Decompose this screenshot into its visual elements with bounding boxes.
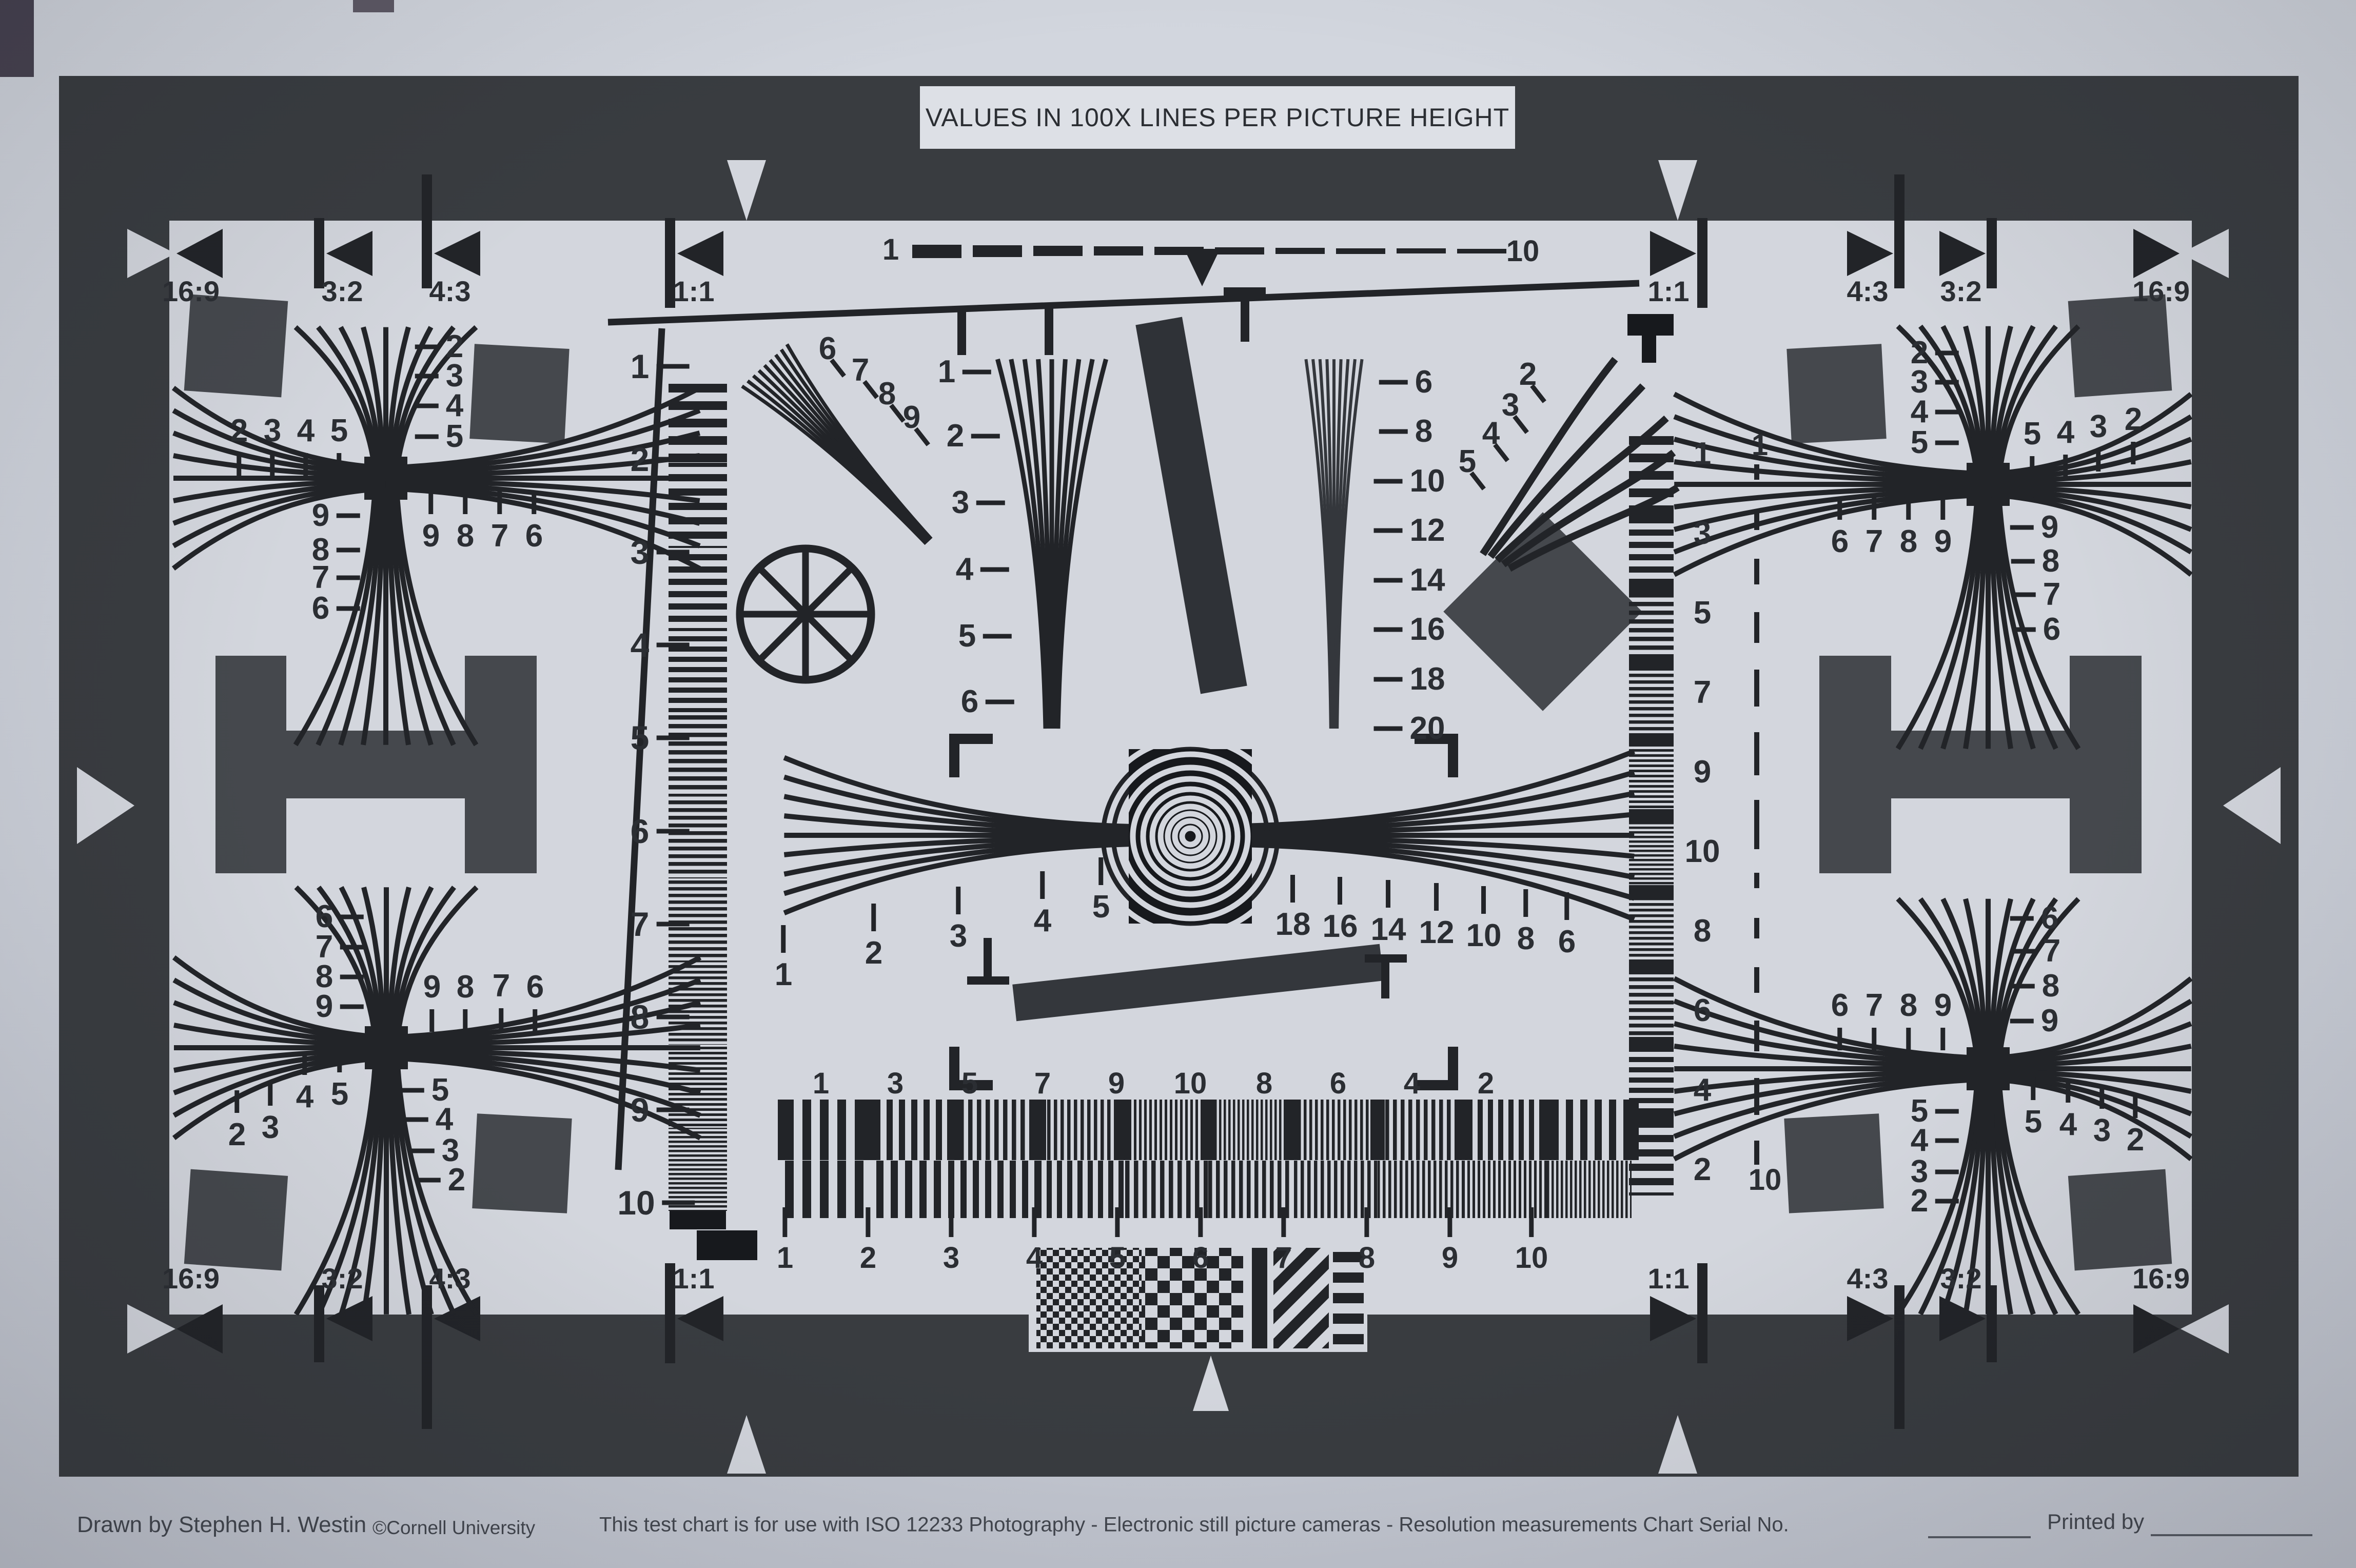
chart-label: 9 — [1934, 990, 1952, 1022]
chart-label: 6 — [2041, 903, 2058, 934]
chart-label: 6 — [2043, 614, 2060, 645]
scale-tick — [949, 1207, 953, 1237]
chart-label: 4 — [631, 628, 650, 662]
chart-label: 4:3 — [429, 1264, 471, 1293]
scale-tick — [533, 1009, 537, 1032]
scale-tick — [2066, 1080, 2070, 1103]
scale-tick — [1935, 1199, 1959, 1204]
scale-tick — [405, 1118, 428, 1122]
chart-label: 3 — [262, 1112, 279, 1144]
scale-tick — [1837, 1028, 1842, 1050]
chart-label: 6 — [1415, 366, 1432, 398]
chart-label: 10 — [617, 1186, 655, 1220]
chart-label: 5 — [2024, 418, 2041, 450]
scale-tick — [270, 453, 274, 476]
chart-label: 3 — [2090, 411, 2107, 443]
chart-label: 8 — [1900, 990, 1917, 1022]
chart-label: 6 — [631, 814, 650, 848]
chart-label: 6 — [316, 901, 333, 933]
chart-label: 1:1 — [673, 277, 715, 306]
chart-label: 5 — [958, 620, 976, 652]
chart-label: 2 — [631, 442, 650, 476]
scale-tick — [237, 453, 241, 476]
chart-label: 1 — [775, 959, 792, 991]
chart-label: 16:9 — [162, 1264, 220, 1293]
scale-tick — [1493, 443, 1509, 462]
scale-tick — [1386, 880, 1391, 908]
chart-label: 3 — [1502, 389, 1519, 421]
chart-label: 8 — [1694, 915, 1711, 947]
scale-tick — [656, 364, 689, 369]
scale-tick — [2133, 1095, 2137, 1118]
scale-tick — [1529, 1207, 1534, 1237]
chart-label: 7 — [491, 520, 508, 552]
chart-label: 10 — [1410, 465, 1445, 497]
chart-label: 9 — [422, 520, 440, 552]
serial-number-underline — [1928, 1536, 2031, 1538]
scale-tick — [463, 492, 467, 514]
chart-label: 2 — [2125, 404, 2142, 436]
chart-label: 2 — [1478, 1069, 1494, 1099]
scale-tick — [2010, 916, 2034, 921]
scale-tick — [1364, 1207, 1369, 1237]
chart-label: 16 — [1410, 614, 1445, 645]
chart-label: 3 — [1694, 518, 1711, 550]
chart-label: 9 — [316, 991, 333, 1023]
chart-label: 16:9 — [2132, 1264, 2190, 1293]
scale-tick — [1482, 886, 1486, 914]
chart-label: 16:9 — [2132, 277, 2190, 306]
chart-label: 14 — [1410, 564, 1445, 596]
chart-label: 9 — [2041, 512, 2058, 543]
scale-tick — [2011, 984, 2035, 989]
scale-tick — [303, 453, 308, 476]
scale-tick — [1447, 1207, 1452, 1237]
scale-tick — [656, 550, 689, 555]
chart-label: 1:1 — [1648, 277, 1690, 306]
chart-label: 6 — [1831, 990, 1849, 1022]
chart-label: 16:9 — [162, 277, 220, 306]
scale-tick — [1935, 380, 1959, 385]
scale-tick — [1032, 1207, 1036, 1237]
chart-label: 8 — [316, 961, 333, 993]
scale-tick — [1374, 677, 1403, 682]
chart-label: 12 — [1419, 917, 1455, 949]
scale-tick — [340, 975, 364, 979]
chart-label: 1 — [1694, 438, 1711, 470]
chart-label: 2 — [947, 420, 964, 452]
scale-tick — [1564, 892, 1569, 920]
chart-label: 5 — [1694, 597, 1711, 629]
scale-tick — [656, 643, 689, 648]
scale-tick — [2012, 949, 2036, 954]
chart-label: 8 — [1900, 526, 1917, 558]
scale-tick — [2012, 593, 2036, 597]
chart-label: 10 — [1685, 836, 1720, 868]
chart-label: 2 — [230, 415, 248, 447]
scale-tick — [1374, 727, 1403, 731]
chart-label: 4 — [1026, 1243, 1043, 1273]
chart-label: 4 — [1911, 1125, 1928, 1157]
chart-label: 2 — [865, 937, 882, 969]
scale-tick — [337, 548, 360, 553]
chart-label: 8 — [457, 971, 474, 1003]
scale-tick — [411, 1149, 435, 1153]
chart-label: 10 — [1466, 920, 1502, 952]
chart-label: 6 — [961, 686, 978, 718]
scale-tick — [866, 1207, 870, 1237]
scale-tick — [656, 736, 689, 740]
chart-label: 7 — [2043, 579, 2060, 611]
scale-tick — [417, 1178, 441, 1183]
chart-label: 4 — [2057, 417, 2074, 448]
scale-tick — [1906, 1028, 1911, 1050]
chart-label: 9 — [2041, 1005, 2058, 1037]
chart-label: 16 — [1323, 911, 1358, 943]
scale-tick — [2010, 1019, 2034, 1024]
chart-label: 10 — [1506, 237, 1540, 266]
scale-tick — [862, 380, 879, 399]
chart-label: 3 — [446, 360, 463, 392]
chart-label: 1 — [813, 1069, 829, 1099]
chart-label: 3 — [2093, 1115, 2111, 1147]
chart-label: 4 — [436, 1104, 453, 1135]
scale-tick — [340, 915, 364, 919]
scale-tick — [428, 492, 433, 514]
scale-tick — [497, 492, 502, 514]
chart-label: 14 — [1371, 914, 1406, 946]
scale-tick — [986, 700, 1014, 704]
chart-label: 8 — [457, 520, 474, 552]
chart-label: 9 — [1108, 1069, 1125, 1099]
chart-label: 18 — [1410, 663, 1445, 695]
scale-tick — [234, 1090, 239, 1113]
chart-label: 1:1 — [1648, 1264, 1690, 1293]
scale-tick — [656, 1108, 689, 1112]
scale-tick — [914, 427, 930, 446]
chart-label: 7 — [852, 355, 869, 386]
scale-tick — [2010, 525, 2034, 530]
scale-tick — [871, 904, 876, 931]
chart-label: 4 — [1694, 1074, 1711, 1106]
chart-label: 2 — [1911, 1185, 1928, 1217]
scale-tick — [656, 457, 689, 462]
chart-label: 8 — [1517, 923, 1535, 955]
chart-label: 9 — [903, 402, 920, 434]
scale-tick — [1935, 1109, 1959, 1114]
chart-label: 9 — [1934, 526, 1952, 558]
chart-label: 2 — [228, 1119, 246, 1151]
chart-label: 5 — [446, 421, 463, 453]
scale-tick — [1374, 578, 1403, 583]
scale-tick — [1338, 877, 1343, 905]
footer-copyright: ©Cornell University — [372, 1517, 535, 1539]
scale-tick — [1940, 1028, 1945, 1050]
footer-printed-by: Printed by — [2047, 1510, 2144, 1534]
chart-label: 4 — [1034, 905, 1051, 937]
chart-label: 6 — [1694, 995, 1711, 1027]
chart-label: 6 — [1831, 526, 1849, 558]
chart-label: 10 — [1174, 1069, 1207, 1099]
chart-label: 18 — [1275, 909, 1311, 940]
chart-labels: 16:93:24:31:11:14:33:216:916:93:24:31:11… — [0, 0, 2356, 1568]
scale-tick — [340, 945, 364, 950]
chart-label: 5 — [331, 1079, 348, 1110]
scale-tick — [2063, 455, 2068, 477]
chart-label: 3 — [631, 535, 650, 569]
scale-tick — [499, 1008, 503, 1031]
scale-tick — [656, 1015, 689, 1020]
printed-by-underline — [2151, 1534, 2312, 1536]
scale-tick — [1374, 479, 1403, 484]
chart-label: 7 — [631, 907, 650, 941]
chart-label: 8 — [631, 1000, 650, 1034]
chart-label: 4:3 — [1847, 277, 1889, 306]
scale-tick — [302, 1052, 307, 1075]
chart-label: 1 — [938, 356, 955, 388]
chart-label: 6 — [525, 520, 543, 552]
chart-label: 3:2 — [322, 277, 363, 306]
chart-label: 1 — [1752, 430, 1768, 460]
chart-label: 3 — [887, 1069, 904, 1099]
scale-tick — [268, 1083, 272, 1106]
scale-tick — [656, 922, 689, 927]
scale-tick — [532, 492, 536, 514]
scale-tick — [1281, 1207, 1286, 1237]
scale-tick — [976, 501, 1005, 505]
chart-label: 6 — [1330, 1069, 1346, 1099]
scale-tick — [337, 606, 360, 611]
scale-tick — [337, 453, 341, 476]
scale-tick — [2099, 1086, 2104, 1109]
scale-tick — [1513, 415, 1529, 434]
chart-label: 6 — [1192, 1243, 1209, 1273]
scale-tick — [1940, 497, 1945, 520]
chart-label: 6 — [819, 333, 836, 365]
scale-tick — [337, 1050, 342, 1072]
chart-label: 4 — [1482, 418, 1500, 449]
scale-tick — [1379, 429, 1408, 434]
scale-tick — [1935, 441, 1959, 445]
chart-label: 3:2 — [1940, 1264, 1982, 1293]
scale-tick — [2131, 442, 2135, 464]
chart-label: 7 — [1866, 526, 1883, 558]
iso12233-test-chart-photo: 16:93:24:31:11:14:33:216:916:93:24:31:11… — [0, 0, 2356, 1568]
scale-tick — [1935, 1170, 1959, 1174]
scale-tick — [2031, 1077, 2035, 1100]
chart-label: 7 — [1275, 1243, 1292, 1273]
scale-tick — [1374, 528, 1403, 533]
scale-tick — [1115, 1207, 1120, 1237]
chart-label: 5 — [330, 415, 348, 447]
chart-label: 6 — [1558, 926, 1576, 958]
chart-label: 8 — [1359, 1243, 1375, 1273]
chart-label: 3 — [952, 487, 969, 519]
chart-label: 8 — [2042, 970, 2059, 1002]
chart-label: 3 — [264, 415, 281, 447]
scale-tick — [971, 434, 1000, 439]
scale-tick — [1374, 628, 1403, 632]
chart-label: 9 — [1442, 1243, 1458, 1273]
scale-tick — [463, 1009, 467, 1032]
scale-tick — [415, 374, 439, 379]
scale-tick — [340, 1005, 364, 1009]
scale-tick — [401, 1088, 424, 1093]
scale-tick — [1935, 410, 1959, 415]
scale-tick — [1435, 883, 1439, 911]
chart-label: 1:1 — [673, 1264, 715, 1293]
scale-tick — [1872, 1028, 1876, 1050]
chart-label: 10 — [1515, 1243, 1548, 1273]
chart-label: 4 — [956, 554, 973, 585]
scale-tick — [2012, 628, 2036, 632]
scale-tick — [415, 404, 439, 408]
scale-tick — [2096, 449, 2100, 472]
chart-label: 8 — [1256, 1069, 1272, 1099]
scale-tick — [429, 1009, 434, 1032]
chart-label: 5 — [961, 1069, 978, 1099]
chart-label: 3 — [950, 920, 967, 952]
chart-label: 4:3 — [1847, 1264, 1889, 1293]
chart-label: 5 — [2025, 1106, 2042, 1138]
chart-label: 5 — [631, 721, 650, 755]
scale-tick — [415, 435, 439, 439]
chart-label: 6 — [526, 971, 544, 1003]
footer-usage-text: This test chart is for use with ISO 1223… — [599, 1514, 1789, 1537]
chart-label: 4 — [297, 415, 315, 447]
scale-tick — [1935, 351, 1959, 356]
scale-tick — [983, 634, 1012, 639]
chart-label: 2 — [448, 1164, 465, 1196]
scale-tick — [781, 925, 786, 953]
scale-tick — [1291, 875, 1295, 903]
chart-label: 4 — [1911, 396, 1928, 428]
scale-tick — [1379, 380, 1408, 385]
chart-label: 6 — [312, 593, 329, 624]
scale-tick — [662, 1201, 695, 1205]
chart-label: 4 — [446, 390, 463, 422]
chart-label: 8 — [1415, 416, 1432, 447]
chart-label: 4 — [1404, 1069, 1420, 1099]
chart-label: 4 — [2059, 1109, 2077, 1141]
scale-tick — [1530, 384, 1546, 403]
chart-label: 9 — [423, 971, 441, 1003]
scale-tick — [830, 359, 846, 378]
scale-tick — [2011, 559, 2035, 564]
chart-label: 9 — [1694, 756, 1711, 788]
chart-label: 7 — [1034, 1069, 1051, 1099]
scale-tick — [782, 1207, 787, 1237]
chart-label: 1 — [631, 349, 650, 383]
chart-label: 2 — [1694, 1154, 1711, 1186]
scale-tick — [1837, 497, 1842, 520]
chart-label: 2 — [1519, 359, 1537, 390]
chart-label: 3 — [1911, 366, 1928, 398]
scale-tick — [415, 345, 439, 349]
chart-label: 20 — [1410, 713, 1445, 744]
chart-label: 1 — [882, 235, 899, 265]
scale-tick — [337, 514, 360, 518]
chart-label: 8 — [2042, 545, 2059, 577]
chart-label: 7 — [493, 970, 510, 1002]
footer-drawn-by: Drawn by Stephen H. Westin — [77, 1512, 366, 1538]
scale-tick — [956, 887, 960, 914]
scale-tick — [1098, 857, 1103, 885]
chart-label: 7 — [2043, 935, 2060, 967]
chart-label: 5 — [1459, 446, 1476, 478]
scale-tick — [1469, 472, 1486, 491]
scale-tick — [1040, 871, 1045, 899]
scale-tick — [1523, 889, 1528, 917]
scale-tick — [963, 370, 991, 375]
chart-label: 5 — [1911, 427, 1928, 459]
scale-tick — [980, 567, 1009, 572]
chart-label: 12 — [1410, 515, 1445, 546]
chart-label: 3:2 — [322, 1264, 363, 1293]
chart-label: 9 — [631, 1093, 650, 1127]
chart-label: 7 — [316, 931, 333, 963]
scale-tick — [337, 576, 360, 580]
chart-title: VALUES IN 100X LINES PER PICTURE HEIGHT — [920, 86, 1515, 149]
chart-label: 2 — [860, 1243, 876, 1273]
scale-tick — [1198, 1207, 1203, 1237]
chart-label: 10 — [1749, 1165, 1782, 1195]
scale-tick — [1906, 497, 1911, 520]
chart-label: 2 — [2127, 1124, 2144, 1156]
chart-label: 3 — [943, 1243, 959, 1273]
chart-label: 7 — [312, 562, 329, 594]
chart-label: 4 — [296, 1081, 313, 1113]
scale-tick — [656, 829, 689, 834]
scale-tick — [1935, 1139, 1959, 1143]
chart-label: 7 — [1866, 990, 1883, 1022]
scale-tick — [2030, 456, 2034, 479]
chart-label: 5 — [1109, 1243, 1126, 1273]
chart-label: 4:3 — [429, 277, 471, 306]
chart-label: 3:2 — [1940, 277, 1982, 306]
chart-label: 9 — [312, 500, 329, 532]
chart-label: 5 — [1092, 891, 1110, 923]
scale-tick — [1872, 497, 1876, 520]
chart-label: 1 — [777, 1243, 793, 1273]
chart-label: 7 — [1694, 677, 1711, 709]
chart-label: 8 — [878, 378, 896, 410]
